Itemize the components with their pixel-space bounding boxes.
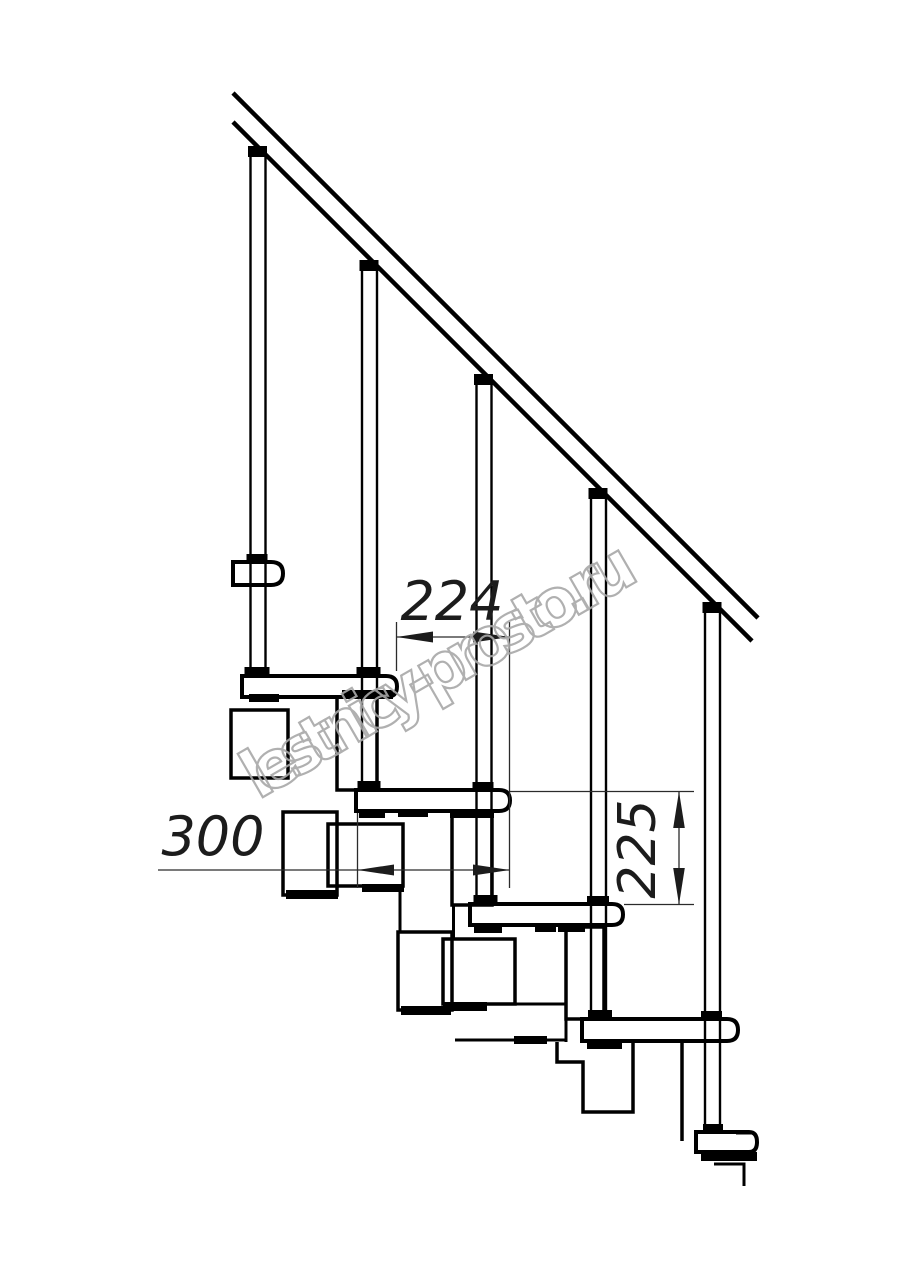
drawing-canvas: 224 300 225 lestnicy-prosto.ru xyxy=(0,0,914,1280)
arrow-up-icon xyxy=(673,792,685,829)
baluster-shadow-pad xyxy=(701,1152,757,1161)
baluster-shadow-pad xyxy=(587,1041,622,1049)
staircase-technical-drawing: 224 300 225 lestnicy-prosto.ru xyxy=(0,0,914,1280)
baluster-tube xyxy=(705,608,720,1126)
baluster-shadow-pad xyxy=(359,811,385,818)
module-notch-outline xyxy=(557,1042,633,1112)
module-neck xyxy=(452,812,492,905)
baluster-mount xyxy=(245,667,270,677)
baluster-collar xyxy=(473,782,494,791)
step-4 xyxy=(582,1019,738,1041)
joint-pad xyxy=(443,1002,487,1011)
arrow-down-icon xyxy=(673,868,685,905)
baluster-mount xyxy=(703,1124,723,1134)
baluster-collar xyxy=(701,1011,722,1020)
baluster-collar xyxy=(587,896,609,905)
module-neck xyxy=(566,927,604,1019)
step-0-fragment xyxy=(233,562,283,585)
baluster-shadow-pad xyxy=(474,925,502,933)
handrail-upper-line xyxy=(233,93,758,618)
dimension-225: 225 xyxy=(509,792,694,905)
step-5 xyxy=(696,1132,757,1152)
step-3 xyxy=(470,904,623,925)
baluster-1 xyxy=(245,146,280,702)
dimension-225-label: 225 xyxy=(608,799,668,898)
baluster-mount xyxy=(588,1010,612,1020)
arrow-left-icon xyxy=(358,865,395,876)
handrail xyxy=(233,93,758,641)
joint-pad xyxy=(286,890,338,899)
module-box xyxy=(443,939,515,1004)
dimension-300-label: 300 xyxy=(161,805,264,868)
module-box xyxy=(328,824,403,886)
baluster-shadow-pad xyxy=(249,694,279,702)
joint-pad xyxy=(362,884,404,892)
baluster-collar xyxy=(247,554,268,563)
baluster-mount xyxy=(474,895,498,905)
joint-pad xyxy=(514,1036,547,1044)
baluster-5 xyxy=(701,602,757,1161)
baluster-mount xyxy=(358,781,381,791)
module-notch-outline xyxy=(714,1164,744,1186)
step-2 xyxy=(356,790,510,811)
baluster-tube xyxy=(251,152,266,672)
